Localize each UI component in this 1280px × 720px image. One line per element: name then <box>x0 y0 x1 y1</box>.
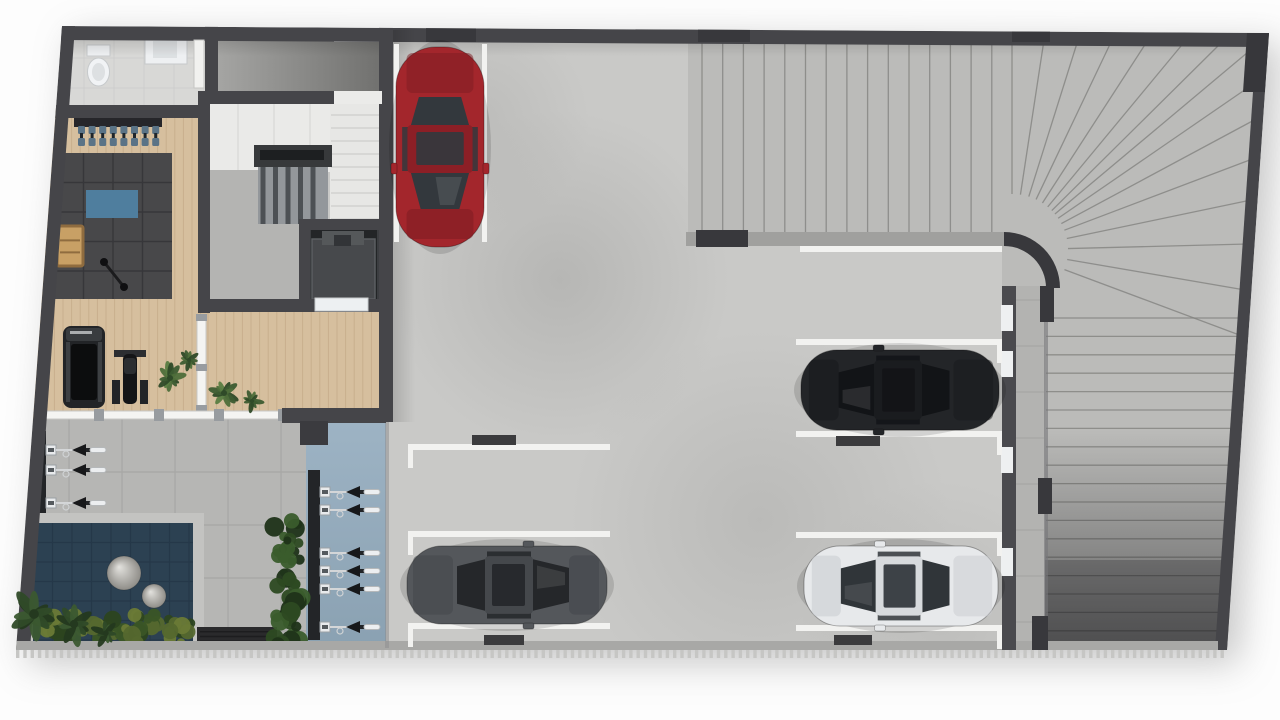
car-mirror <box>873 345 884 351</box>
wall-right-corner-column <box>1243 33 1269 92</box>
car-sunroof <box>884 564 916 607</box>
car-mirror <box>874 625 885 631</box>
floor-plan-scene <box>0 0 1280 720</box>
stairs-flight <box>330 94 385 224</box>
car-sunroof <box>882 368 915 411</box>
car-trunk <box>407 53 474 93</box>
wood-plyo-bench <box>57 226 83 266</box>
hall-wood-grain <box>208 306 380 422</box>
white-car <box>797 539 1005 633</box>
ramp-edge-line <box>1044 286 1048 650</box>
elevator-motor-box <box>334 235 351 246</box>
wall-hall-terrace <box>282 408 386 423</box>
stair-top-opening <box>334 91 382 104</box>
floor-plan-image <box>0 0 1280 720</box>
wall-bathroom-bottom <box>50 105 208 118</box>
wall-bathroom-divider <box>205 26 218 94</box>
car-rear-window <box>457 559 485 610</box>
car-hood <box>569 555 599 614</box>
building <box>16 10 1270 720</box>
wall-stair-left <box>198 91 210 313</box>
car-trunk <box>413 555 453 614</box>
hall-wood-floor <box>206 306 386 422</box>
wall-elevator-left <box>299 219 310 312</box>
stairs-lower-floor <box>258 166 328 224</box>
car-hood <box>407 209 474 239</box>
wall-bluewall-block <box>300 421 328 445</box>
car-hood <box>812 556 841 617</box>
red-car <box>389 40 491 254</box>
gray-car <box>400 539 614 631</box>
car-mirror <box>873 429 884 435</box>
car-mirror <box>523 623 534 629</box>
car-hood <box>809 360 839 421</box>
bathroom-door <box>194 40 204 88</box>
bike-rail-right <box>308 470 320 640</box>
wall-elevator-top <box>299 219 388 230</box>
car-rear-window <box>411 97 469 125</box>
serrated-facade-edge <box>16 650 1224 658</box>
car-trunk <box>953 556 992 617</box>
blue-exercise-mat <box>86 190 138 218</box>
ramp-walkway <box>1015 286 1045 650</box>
car-mirror <box>391 163 397 174</box>
car-sunroof <box>492 564 525 606</box>
car-mirror <box>483 163 489 174</box>
black-car <box>794 343 1006 437</box>
stair-railing-slot <box>260 150 324 160</box>
ramp-parapet-column <box>696 230 748 247</box>
car-sunroof <box>416 132 464 165</box>
car-mirror <box>874 541 885 547</box>
elevator-car <box>312 239 375 299</box>
car-trunk <box>953 360 993 421</box>
edge-bluewall-parking <box>385 422 389 648</box>
elevator-door-sill <box>315 298 368 311</box>
pool-sphere-small <box>142 584 166 608</box>
car-mirror <box>523 541 534 547</box>
treadmill <box>63 326 105 408</box>
car-rear-window <box>922 364 950 417</box>
pool-sphere-large <box>107 556 141 590</box>
car-rear-window <box>922 560 949 613</box>
